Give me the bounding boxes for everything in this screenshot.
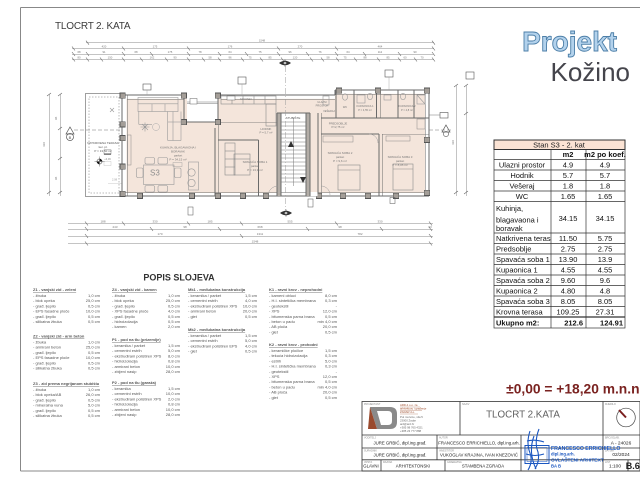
svg-text:96: 96 xyxy=(54,176,58,180)
svg-text:0,5 cm: 0,5 cm xyxy=(245,314,258,319)
svg-text:9.60: 9.60 xyxy=(561,276,576,285)
svg-text:75: 75 xyxy=(258,50,262,54)
svg-text:POPIS SLOJEVA: POPIS SLOJEVA xyxy=(143,273,215,283)
svg-text:782: 782 xyxy=(357,232,362,236)
svg-text:Stan S3 - 2. kat: Stan S3 - 2. kat xyxy=(533,141,586,150)
svg-text:- glet: - glet xyxy=(269,395,279,400)
svg-text:2.75: 2.75 xyxy=(598,245,613,254)
svg-text:96: 96 xyxy=(54,116,58,120)
svg-text:RAZINA: RAZINA xyxy=(383,461,393,464)
svg-text:112: 112 xyxy=(378,50,383,54)
svg-text:BROJ ELAB.: BROJ ELAB. xyxy=(605,437,620,440)
svg-text:VUKOGLAV KRAJINA, IVAN KNEZOVI: VUKOGLAV KRAJINA, IVAN KNEZOVIĆ xyxy=(440,453,518,458)
svg-text:Z1 - vanjski zid - zeleni: Z1 - vanjski zid - zeleni xyxy=(33,287,76,292)
svg-text:AUTOR: AUTOR xyxy=(439,437,448,440)
svg-text:Kupaonica 1: Kupaonica 1 xyxy=(496,266,538,275)
svg-text:P1 - pod na tlu (prizemlje): P1 - pod na tlu (prizemlje) xyxy=(112,337,161,342)
svg-text:P = 5,7 m²: P = 5,7 m² xyxy=(260,131,273,135)
svg-text:02/2024: 02/2024 xyxy=(612,452,630,458)
svg-text:ARHITEKTONSKI: ARHITEKTONSKI xyxy=(396,464,431,469)
svg-text:- silikatna žbuka: - silikatna žbuka xyxy=(33,319,62,324)
svg-text:270: 270 xyxy=(298,44,303,48)
svg-text:Z3 - zid prema negrijanom stub: Z3 - zid prema negrijanom stubištu xyxy=(33,381,100,386)
svg-text:m2: m2 xyxy=(563,150,574,159)
svg-text:B: B xyxy=(69,135,72,140)
svg-text:Spavaća soba 1: Spavaća soba 1 xyxy=(496,255,550,264)
svg-text:Ulazni prostor: Ulazni prostor xyxy=(499,161,546,170)
svg-text:555: 555 xyxy=(287,220,292,224)
svg-text:8.05: 8.05 xyxy=(561,297,576,306)
svg-text:JURE GRBIĆ, dipl.ing.građ.: JURE GRBIĆ, dipl.ing.građ. xyxy=(373,441,426,446)
svg-text:Z4 - vanjski zid - kamen: Z4 - vanjski zid - kamen xyxy=(112,287,157,292)
svg-text:5.7: 5.7 xyxy=(600,171,610,180)
svg-text:ULAZNI: ULAZNI xyxy=(317,100,327,104)
svg-text:70: 70 xyxy=(420,55,424,59)
svg-text:Kožino: Kožino xyxy=(551,57,631,87)
svg-text:75: 75 xyxy=(343,55,347,59)
svg-text:P = 9,6 m²: P = 9,6 m² xyxy=(333,159,347,163)
svg-text:410: 410 xyxy=(42,142,46,147)
svg-text:410: 410 xyxy=(451,140,455,145)
svg-text:175: 175 xyxy=(153,44,158,48)
svg-text:P = 4,8 m²: P = 4,8 m² xyxy=(401,108,413,112)
svg-text:KUPAONICA 2: KUPAONICA 2 xyxy=(398,104,416,108)
svg-text:Hodnik: Hodnik xyxy=(510,171,534,180)
svg-text:8.05: 8.05 xyxy=(598,297,613,306)
svg-text:BA B: BA B xyxy=(551,464,561,469)
svg-text:150: 150 xyxy=(108,55,113,59)
svg-text:NAZIV: NAZIV xyxy=(462,403,470,406)
svg-text:80: 80 xyxy=(77,55,81,59)
svg-text:4.55: 4.55 xyxy=(598,266,613,275)
svg-text:60: 60 xyxy=(403,55,407,59)
svg-text:Natkrivena teras: Natkrivena teras xyxy=(496,234,551,243)
svg-text:0,5 cm: 0,5 cm xyxy=(325,395,338,400)
svg-text:2,0 cm: 2,0 cm xyxy=(168,324,181,329)
svg-text:- silikatna žbuka: - silikatna žbuka xyxy=(33,413,62,418)
svg-text:96: 96 xyxy=(288,50,292,54)
svg-text:PROJEKTANT: PROJEKTANT xyxy=(364,403,381,406)
svg-text:KUHINJA: KUHINJA xyxy=(240,97,252,101)
svg-text:S3: S3 xyxy=(150,169,160,178)
svg-text:93: 93 xyxy=(428,225,432,229)
svg-text:170: 170 xyxy=(157,232,162,236)
svg-text:KUPAONICA 1: KUPAONICA 1 xyxy=(356,104,374,108)
svg-text:VODITELJ: VODITELJ xyxy=(364,437,377,440)
svg-text:212.6: 212.6 xyxy=(564,319,583,328)
svg-text:- zbijeni nasip: - zbijeni nasip xyxy=(112,369,137,374)
svg-text:+385 23 777 888: +385 23 777 888 xyxy=(400,429,422,433)
svg-text:- kamen: - kamen xyxy=(112,324,126,329)
svg-text:Z2 - vanjski zid - arm beton: Z2 - vanjski zid - arm beton xyxy=(33,334,85,339)
svg-text:176: 176 xyxy=(228,44,233,48)
svg-text:668: 668 xyxy=(257,225,262,229)
svg-text:185: 185 xyxy=(207,220,212,224)
svg-text:Mk1 - međukatna konstrukcija: Mk1 - međukatna konstrukcija xyxy=(188,287,246,292)
svg-text:96: 96 xyxy=(228,55,232,59)
svg-text:GRAĐEVINA: GRAĐEVINA xyxy=(447,461,462,464)
svg-text:P2 - pod na tlu (garaža): P2 - pod na tlu (garaža) xyxy=(112,380,157,385)
svg-text:58: 58 xyxy=(208,55,212,59)
svg-text:175: 175 xyxy=(168,50,173,54)
svg-text:1311: 1311 xyxy=(257,232,264,236)
svg-text:58: 58 xyxy=(326,55,330,59)
svg-text:98: 98 xyxy=(338,225,342,229)
svg-text:STAMBENA ZGRADA: STAMBENA ZGRADA xyxy=(462,464,504,469)
svg-text:68: 68 xyxy=(77,50,81,54)
svg-text:13.90: 13.90 xyxy=(559,255,578,264)
svg-text:Spavaća soba 3: Spavaća soba 3 xyxy=(496,297,550,306)
svg-text:Predsoblje: Predsoblje xyxy=(496,245,531,254)
svg-text:±0,00 = +18,20 m.n.n: ±0,00 = +18,20 m.n.n xyxy=(506,382,639,397)
svg-text:FRANCESCO ERRICHIELLO, dipl.in: FRANCESCO ERRICHIELLO, dipl.ing.arh. xyxy=(438,441,519,446)
svg-text:P = 34,15 m²: P = 34,15 m² xyxy=(169,158,186,162)
svg-text:Kupaonica 2: Kupaonica 2 xyxy=(496,287,538,296)
svg-text:1.8: 1.8 xyxy=(563,182,573,191)
svg-text:243: 243 xyxy=(112,225,117,229)
svg-text:STUBIŠTE: STUBIŠTE xyxy=(286,115,301,120)
svg-text:B.6.: B.6. xyxy=(626,461,640,471)
svg-text:1.8: 1.8 xyxy=(600,182,610,191)
svg-text:dipl.ing.arh.: dipl.ing.arh. xyxy=(551,452,575,457)
svg-text:0,5 cm: 0,5 cm xyxy=(88,366,101,371)
svg-text:9.6: 9.6 xyxy=(600,276,610,285)
svg-text:1:100: 1:100 xyxy=(609,464,621,470)
svg-text:4.8: 4.8 xyxy=(600,287,610,296)
svg-text:K2 - ravni krov - prohodni: K2 - ravni krov - prohodni xyxy=(269,342,318,347)
svg-text:boravak: boravak xyxy=(496,224,523,233)
svg-text:Krovna terasa: Krovna terasa xyxy=(496,308,544,317)
svg-text:m2 po koef.: m2 po koef. xyxy=(584,150,626,159)
svg-text:P=2,75 m²: P=2,75 m² xyxy=(332,125,345,129)
svg-text:68: 68 xyxy=(134,50,138,54)
svg-text:330: 330 xyxy=(377,220,382,224)
svg-text:1.65: 1.65 xyxy=(561,192,576,201)
svg-text:K1 - ravni krov - neprohodni: K1 - ravni krov - neprohodni xyxy=(269,287,322,292)
svg-text:Projekt: Projekt xyxy=(522,26,617,57)
svg-text:P = 8,05 m²: P = 8,05 m² xyxy=(392,163,408,167)
svg-text:420: 420 xyxy=(102,44,107,48)
svg-text:90: 90 xyxy=(413,50,417,54)
svg-text:4.80: 4.80 xyxy=(561,287,576,296)
svg-text:64: 64 xyxy=(228,50,232,54)
svg-text:75: 75 xyxy=(248,55,252,59)
svg-text:109.25: 109.25 xyxy=(557,308,580,317)
svg-text:28,0 cm: 28,0 cm xyxy=(166,412,181,417)
svg-text:P = 4,55 m²: P = 4,55 m² xyxy=(358,108,372,112)
svg-text:120: 120 xyxy=(293,55,298,59)
svg-text:1548: 1548 xyxy=(259,39,266,43)
svg-text:TLOCRT 2. KATA: TLOCRT 2. KATA xyxy=(55,21,131,32)
svg-text:+3,06: +3,06 xyxy=(104,157,111,161)
svg-text:1548: 1548 xyxy=(252,240,259,244)
svg-text:GLAVNI: GLAVNI xyxy=(363,464,378,469)
svg-text:5.75: 5.75 xyxy=(598,234,613,243)
svg-text:1.65: 1.65 xyxy=(598,192,613,201)
svg-text:Vešeraj: Vešeraj xyxy=(509,182,534,191)
svg-text:4.9: 4.9 xyxy=(600,161,610,170)
svg-text:11.50: 11.50 xyxy=(559,234,577,243)
svg-text:85: 85 xyxy=(386,55,390,59)
svg-text:Kuhinja,: Kuhinja, xyxy=(496,204,523,213)
svg-text:- glet: - glet xyxy=(188,314,198,319)
svg-text:34.15: 34.15 xyxy=(596,214,615,223)
svg-text:- silikatna žbuka: - silikatna žbuka xyxy=(33,366,62,371)
svg-text:34.15: 34.15 xyxy=(559,214,578,223)
svg-text:- glet: - glet xyxy=(269,329,279,334)
svg-text:5.7: 5.7 xyxy=(563,171,573,180)
svg-text:64: 64 xyxy=(346,50,350,54)
svg-text:4.55: 4.55 xyxy=(561,266,576,275)
svg-text:27.31: 27.31 xyxy=(596,308,615,317)
svg-text:188: 188 xyxy=(100,220,105,224)
svg-text:78: 78 xyxy=(198,50,202,54)
svg-text:JURE GRBIĆ, dipl.ing.građ.: JURE GRBIĆ, dipl.ing.građ. xyxy=(373,453,426,458)
svg-text:98: 98 xyxy=(183,225,187,229)
svg-text:Mk2 - međukatna konstrukcija: Mk2 - međukatna konstrukcija xyxy=(188,327,246,332)
svg-text:91: 91 xyxy=(102,50,106,54)
svg-text:88: 88 xyxy=(363,55,367,59)
svg-text:162: 162 xyxy=(150,55,155,59)
svg-text:90: 90 xyxy=(173,55,177,59)
svg-text:Ukupno m2:: Ukupno m2: xyxy=(496,319,539,328)
svg-text:Spavaća soba 2: Spavaća soba 2 xyxy=(496,276,550,285)
svg-text:2.08: 2.08 xyxy=(112,178,118,182)
svg-text:330: 330 xyxy=(152,220,157,224)
svg-text:PROSTOR: PROSTOR xyxy=(316,104,329,108)
svg-text:WC: WC xyxy=(516,192,529,201)
svg-text:0,5 cm: 0,5 cm xyxy=(245,349,258,354)
svg-text:0,5 cm: 0,5 cm xyxy=(88,413,101,418)
svg-text:464: 464 xyxy=(378,44,383,48)
svg-text:P = 13,9 m²: P = 13,9 m² xyxy=(247,168,263,172)
svg-text:0,5 cm: 0,5 cm xyxy=(88,319,101,324)
svg-text:TLOCRT 2.KATA: TLOCRT 2.KATA xyxy=(486,410,560,421)
svg-text:76: 76 xyxy=(318,50,322,54)
svg-text:85: 85 xyxy=(268,55,272,59)
svg-text:WC: WC xyxy=(343,105,347,109)
svg-text:2.75: 2.75 xyxy=(561,245,576,254)
svg-text:4.9: 4.9 xyxy=(563,161,573,170)
svg-text:- glet: - glet xyxy=(188,349,198,354)
svg-text:28,0 cm: 28,0 cm xyxy=(166,369,181,374)
svg-text:- zbijeni nasip: - zbijeni nasip xyxy=(112,412,137,417)
svg-text:0,5 cm: 0,5 cm xyxy=(325,329,338,334)
svg-text:13.9: 13.9 xyxy=(598,255,613,264)
svg-text:MJERILO: MJERILO xyxy=(605,403,616,406)
svg-text:124.91: 124.91 xyxy=(600,319,623,328)
